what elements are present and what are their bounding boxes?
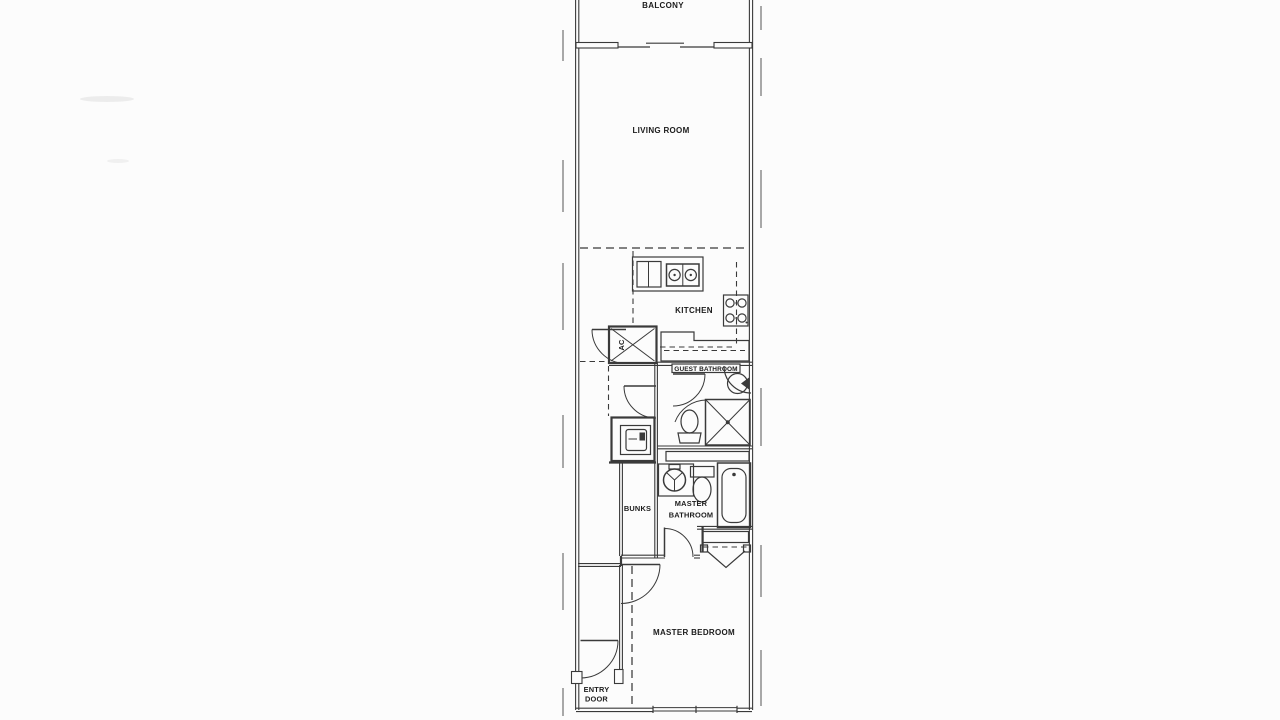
bunks-label: BUNKS	[624, 504, 651, 513]
balcony: BALCONY	[576, 1, 752, 48]
guest-bathroom: GUEST BATHROOM	[657, 364, 752, 461]
corner-shower-icon	[675, 400, 750, 446]
interior-main-wall	[655, 362, 658, 558]
closet-shelf	[703, 532, 749, 543]
ac-closet: AC	[592, 327, 657, 364]
paper-smudges	[80, 96, 134, 163]
balcony-label: BALCONY	[642, 1, 684, 10]
ac-closet-label: AC	[617, 339, 626, 351]
guest-toilet-icon	[678, 410, 701, 443]
laundry-closet	[612, 386, 657, 461]
entry-label-line2: DOOR	[585, 695, 608, 704]
stove-burners-icon	[724, 295, 749, 326]
master-bedroom: MASTER BEDROOM	[620, 565, 737, 714]
refrigerator-icon	[637, 262, 661, 288]
bathtub-icon	[718, 463, 751, 528]
master-bathroom-label-line2: BATHROOM	[669, 511, 714, 520]
bedroom-window-icon	[653, 706, 737, 714]
master-bathroom-door-swing	[665, 528, 694, 558]
outer-walls	[576, 0, 753, 712]
bifold-closet-doors-icon	[707, 551, 745, 568]
master-round-sink-icon	[659, 464, 694, 496]
hallway	[580, 362, 632, 708]
bedroom-closet	[697, 526, 752, 567]
living-room: LIVING ROOM	[580, 126, 748, 248]
guest-bathroom-vanity	[666, 452, 749, 462]
guest-bathroom-label: GUEST BATHROOM	[674, 366, 737, 373]
master-bedroom-label: MASTER BEDROOM	[653, 628, 735, 637]
kitchen-double-sink-icon	[667, 264, 700, 286]
entry-door-swing	[581, 641, 619, 679]
laundry-closet-door-swing	[624, 386, 656, 418]
floor-plan-canvas: BALCONY LIVING ROOM KITCHEN	[0, 0, 1280, 720]
kitchen-label: KITCHEN	[675, 306, 713, 315]
living-room-label: LIVING ROOM	[632, 126, 689, 135]
entry-label-line1: ENTRY	[584, 685, 610, 694]
scanned-floor-plan-page: BALCONY LIVING ROOM KITCHEN	[0, 0, 1280, 720]
washer-icon	[626, 430, 647, 451]
guest-bathroom-door-swing	[673, 374, 705, 406]
master-bathroom-label-line1: MASTER	[675, 499, 708, 508]
sliding-glass-door-icon	[618, 43, 714, 47]
bedroom-door-swing	[621, 565, 660, 604]
